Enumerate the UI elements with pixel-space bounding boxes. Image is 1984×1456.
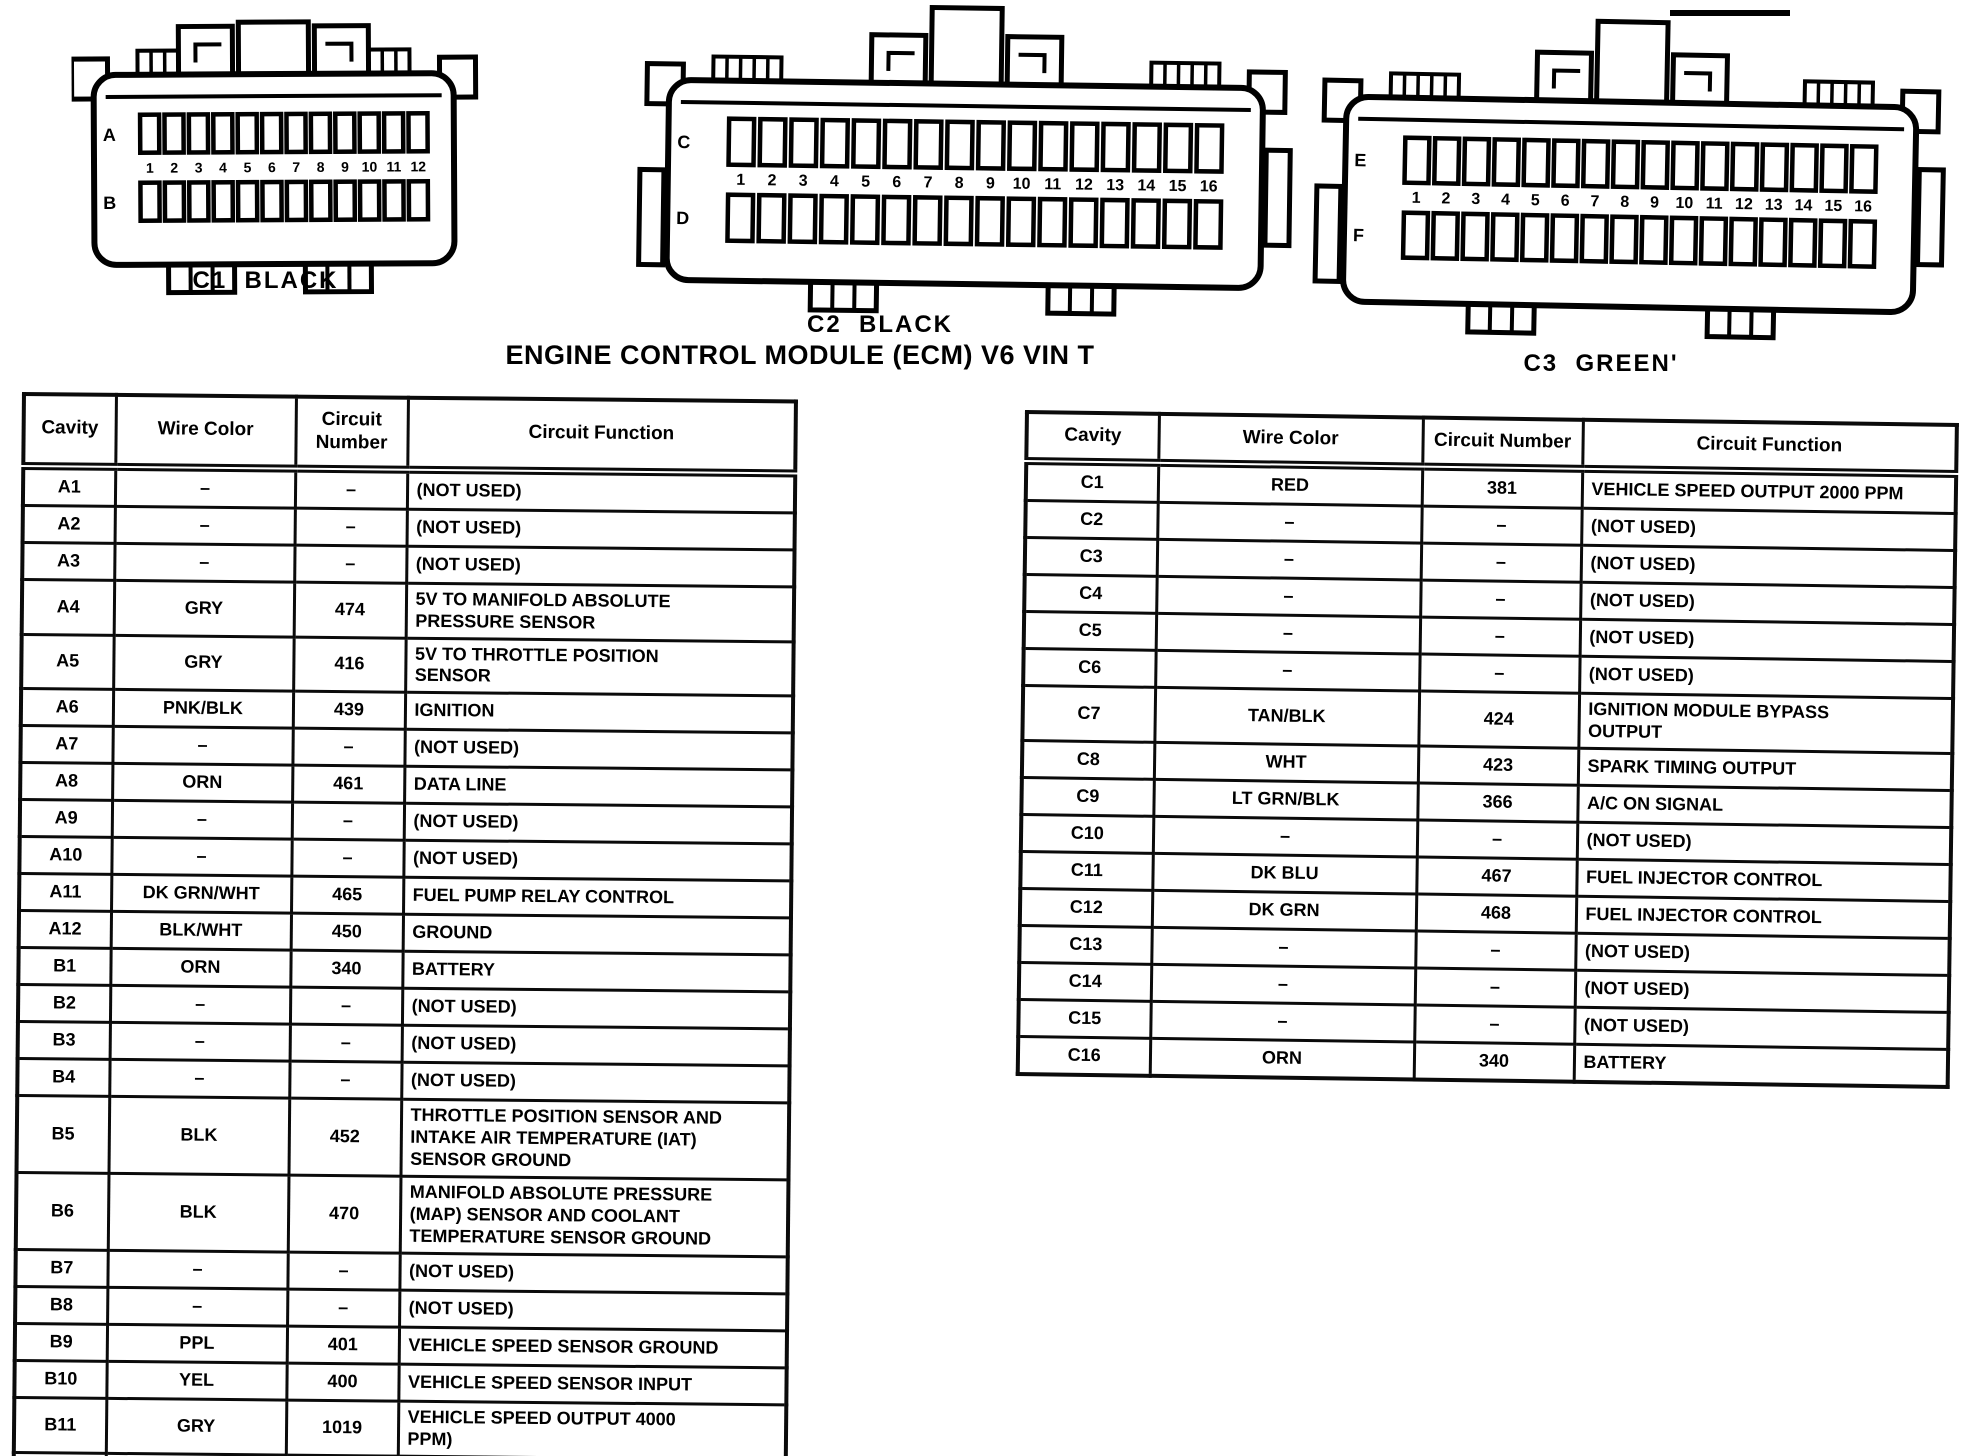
- wire-color-cell: ORN: [110, 949, 290, 988]
- wire-color-cell: LT GRN/BLK: [1153, 779, 1417, 820]
- connector-diagram-c2: CD12345678910111213141516 C2 BLACK: [634, 0, 1296, 339]
- connector-c3-drawing: EF12345678910111213141516: [1308, 8, 1954, 360]
- svg-text:8: 8: [1620, 194, 1629, 211]
- svg-text:5: 5: [243, 159, 251, 175]
- svg-text:12: 12: [1735, 196, 1753, 213]
- table-row: A5 GRY 416 5V TO THROTTLE POSITION SENSO…: [21, 634, 793, 696]
- circuit-number-cell: 439: [293, 692, 405, 730]
- circuit-function-cell: BATTERY: [402, 952, 790, 993]
- svg-text:12: 12: [410, 158, 426, 174]
- pinout-table-c2: Cavity Wire Color Circuit Number Circuit…: [1016, 410, 1959, 1089]
- wire-color-cell: –: [107, 1287, 287, 1326]
- header-circuit-number: Circuit Number: [1422, 418, 1583, 469]
- wire-color-cell: –: [110, 986, 290, 1025]
- wire-color-cell: –: [114, 543, 294, 582]
- circuit-number-cell: –: [1421, 506, 1582, 545]
- svg-text:3: 3: [799, 173, 808, 190]
- circuit-function-cell: (NOT USED): [1579, 656, 1953, 698]
- cavity-cell: B3: [18, 1022, 110, 1060]
- wire-color-cell: PPL: [107, 1324, 287, 1363]
- circuit-number-cell: 423: [1418, 746, 1579, 785]
- circuit-number-cell: 470: [288, 1175, 401, 1253]
- circuit-function-cell: (NOT USED): [1581, 508, 1955, 550]
- cavity-cell: C5: [1024, 611, 1157, 650]
- svg-text:12: 12: [1075, 177, 1093, 194]
- cavity-cell: B6: [16, 1173, 109, 1251]
- cavity-cell: C4: [1024, 574, 1157, 613]
- circuit-number-cell: –: [287, 1289, 399, 1327]
- circuit-number-cell: –: [295, 468, 407, 509]
- svg-text:8: 8: [955, 175, 964, 192]
- cavity-cell: A1: [23, 466, 115, 506]
- connector-c1-drawing: AB123456789101112: [71, 11, 505, 308]
- circuit-function-cell: DATA LINE: [404, 767, 792, 808]
- circuit-function-cell: (NOT USED): [407, 469, 795, 512]
- wire-color-cell: –: [1157, 502, 1421, 543]
- wire-color-cell: GRY: [114, 580, 295, 637]
- wire-color-cell: –: [115, 466, 295, 507]
- cavity-cell: B1: [18, 948, 110, 986]
- svg-text:B: B: [103, 193, 116, 213]
- pinout-table-c1: Cavity Wire Color Circuit Number Circuit…: [11, 392, 798, 1456]
- svg-text:D: D: [676, 208, 689, 228]
- cavity-cell: A8: [20, 763, 112, 801]
- cavity-cell: A7: [20, 726, 112, 764]
- svg-text:C: C: [677, 132, 690, 152]
- header-circuit-function: Circuit Function: [1582, 420, 1957, 474]
- wire-color-cell: BLK: [108, 1174, 289, 1253]
- svg-text:14: 14: [1137, 177, 1155, 194]
- circuit-function-cell: (NOT USED): [403, 841, 791, 882]
- wire-color-cell: PNK/BLK: [113, 690, 293, 729]
- svg-text:F: F: [1353, 225, 1364, 245]
- svg-text:6: 6: [892, 174, 901, 191]
- circuit-function-cell: GROUND: [403, 915, 791, 956]
- circuit-function-cell: (NOT USED): [1577, 822, 1951, 864]
- circuit-function-cell: MANIFOLD ABSOLUTE PRESSURE (MAP) SENSOR …: [400, 1176, 789, 1257]
- svg-text:15: 15: [1169, 178, 1187, 195]
- wire-color-cell: TAN/BLK: [1154, 687, 1419, 746]
- header-cavity: Cavity: [23, 394, 116, 466]
- svg-text:15: 15: [1824, 198, 1842, 215]
- circuit-function-cell: VEHICLE SPEED OUTPUT 4000 PPM): [398, 1401, 787, 1456]
- cavity-cell: B8: [15, 1287, 107, 1325]
- svg-text:7: 7: [1590, 193, 1599, 210]
- circuit-number-cell: –: [1421, 543, 1582, 582]
- circuit-function-cell: (NOT USED): [404, 804, 792, 845]
- circuit-function-cell: FUEL PUMP RELAY CONTROL: [403, 878, 791, 919]
- circuit-number-cell: –: [1417, 820, 1578, 859]
- circuit-number-cell: –: [295, 508, 407, 546]
- circuit-number-cell: 450: [291, 914, 403, 952]
- cavity-cell: A3: [22, 542, 114, 580]
- circuit-number-cell: 340: [290, 951, 402, 989]
- wire-color-cell: ORN: [1150, 1038, 1414, 1079]
- wire-color-cell: –: [110, 1023, 290, 1062]
- svg-text:11: 11: [1044, 176, 1061, 193]
- circuit-function-cell: (NOT USED): [402, 989, 790, 1030]
- circuit-function-cell: (NOT USED): [1580, 619, 1954, 661]
- header-wire-color: Wire Color: [1158, 414, 1423, 466]
- cavity-cell: C13: [1019, 925, 1152, 964]
- cavity-cell: B9: [15, 1324, 107, 1362]
- wire-color-cell: –: [1151, 964, 1415, 1005]
- circuit-function-cell: (NOT USED): [406, 546, 794, 587]
- circuit-function-cell: (NOT USED): [407, 509, 795, 550]
- cavity-cell: A6: [21, 689, 113, 727]
- cavity-cell: C7: [1022, 685, 1155, 742]
- svg-text:11: 11: [1706, 195, 1723, 212]
- circuit-number-cell: –: [1420, 617, 1581, 656]
- svg-text:9: 9: [986, 175, 995, 192]
- circuit-function-cell: VEHICLE SPEED OUTPUT 2000 PPM: [1582, 469, 1957, 514]
- svg-text:5: 5: [861, 174, 870, 191]
- circuit-function-cell: THROTTLE POSITION SENSOR AND INTAKE AIR …: [400, 1100, 789, 1181]
- cavity-cell: C9: [1021, 777, 1154, 816]
- circuit-number-cell: 366: [1417, 783, 1578, 822]
- wire-color-cell: –: [1156, 576, 1420, 617]
- cavity-cell: B4: [17, 1059, 109, 1097]
- svg-text:3: 3: [1471, 191, 1480, 208]
- wire-color-cell: –: [1157, 539, 1421, 580]
- circuit-function-cell: (NOT USED): [404, 730, 792, 771]
- cavity-cell: C8: [1022, 740, 1155, 779]
- circuit-function-cell: (NOT USED): [399, 1290, 787, 1331]
- table-row: B5 BLK 452 THROTTLE POSITION SENSOR AND …: [17, 1096, 790, 1180]
- svg-text:13: 13: [1106, 177, 1124, 194]
- svg-text:13: 13: [1765, 197, 1783, 214]
- svg-text:E: E: [1354, 150, 1366, 170]
- circuit-number-cell: 474: [294, 582, 407, 638]
- circuit-number-cell: 468: [1416, 894, 1577, 933]
- cavity-cell: C16: [1018, 1036, 1151, 1075]
- table-row: B11 GRY 1019 VEHICLE SPEED OUTPUT 4000 P…: [14, 1398, 786, 1456]
- circuit-function-cell: (NOT USED): [402, 1026, 790, 1067]
- wire-color-cell: RED: [1158, 463, 1423, 506]
- svg-text:5: 5: [1531, 192, 1540, 209]
- cavity-cell: C1: [1026, 461, 1159, 502]
- wire-color-cell: –: [112, 801, 292, 840]
- circuit-number-cell: –: [287, 1252, 399, 1290]
- table-row: A4 GRY 474 5V TO MANIFOLD ABSOLUTE PRESS…: [22, 579, 794, 641]
- circuit-number-cell: 452: [288, 1099, 401, 1177]
- wire-color-cell: –: [112, 727, 292, 766]
- cavity-cell: C15: [1018, 999, 1151, 1038]
- cavity-cell: B5: [17, 1096, 110, 1174]
- svg-text:10: 10: [362, 159, 378, 175]
- circuit-function-cell: FUEL INJECTOR CONTROL: [1576, 896, 1950, 938]
- circuit-number-cell: 1019: [286, 1400, 399, 1456]
- wire-color-cell: –: [1156, 613, 1420, 654]
- cavity-cell: C14: [1019, 962, 1152, 1001]
- cavity-cell: B2: [18, 985, 110, 1023]
- circuit-function-cell: FUEL INJECTOR CONTROL: [1576, 859, 1950, 901]
- svg-text:10: 10: [1675, 195, 1693, 212]
- svg-text:16: 16: [1854, 198, 1872, 215]
- svg-text:1: 1: [146, 160, 154, 176]
- cavity-cell: B10: [14, 1361, 106, 1399]
- svg-text:2: 2: [767, 172, 776, 189]
- circuit-function-cell: (NOT USED): [1575, 970, 1949, 1012]
- circuit-number-cell: –: [1420, 580, 1581, 619]
- circuit-function-cell: SPARK TIMING OUTPUT: [1578, 748, 1952, 790]
- cavity-cell: C2: [1025, 500, 1158, 539]
- table-row: B6 BLK 470 MANIFOLD ABSOLUTE PRESSURE (M…: [16, 1173, 789, 1257]
- page-title: ENGINE CONTROL MODULE (ECM) V6 VIN T: [400, 340, 1200, 371]
- circuit-function-cell: (NOT USED): [1580, 582, 1954, 624]
- circuit-number-cell: 381: [1422, 466, 1583, 508]
- wire-color-cell: –: [107, 1250, 287, 1289]
- circuit-function-cell: (NOT USED): [1574, 1007, 1948, 1049]
- circuit-number-cell: –: [1415, 931, 1576, 970]
- svg-text:4: 4: [1501, 192, 1510, 209]
- svg-text:2: 2: [170, 160, 178, 176]
- circuit-function-cell: IGNITION MODULE BYPASS OUTPUT: [1578, 693, 1953, 753]
- cavity-cell: C12: [1020, 888, 1153, 927]
- wire-color-cell: –: [1151, 927, 1415, 968]
- svg-text:6: 6: [268, 159, 276, 175]
- table-header-row: Cavity Wire Color Circuit Number Circuit…: [23, 394, 796, 473]
- circuit-number-cell: –: [1415, 968, 1576, 1007]
- header-circuit-number: Circuit Number: [295, 397, 408, 470]
- svg-text:8: 8: [317, 159, 325, 175]
- svg-text:1: 1: [1412, 190, 1421, 207]
- circuit-number-cell: –: [290, 988, 402, 1026]
- circuit-number-cell: –: [1419, 654, 1580, 693]
- circuit-number-cell: 467: [1416, 857, 1577, 896]
- wire-color-cell: BLK: [109, 1097, 290, 1176]
- circuit-number-cell: 424: [1418, 691, 1579, 748]
- svg-text:A: A: [103, 125, 116, 145]
- circuit-function-cell: BATTERY: [1574, 1044, 1948, 1087]
- cavity-cell: B12: [13, 1453, 105, 1456]
- cavity-cell: C11: [1020, 851, 1153, 890]
- svg-text:10: 10: [1013, 176, 1031, 193]
- cavity-cell: A9: [20, 800, 112, 838]
- wire-color-cell: –: [115, 506, 295, 545]
- wire-color-cell: GRY: [113, 635, 294, 692]
- circuit-function-cell: 5V TO THROTTLE POSITION SENSOR: [405, 638, 794, 697]
- wire-color-cell: GRY: [106, 1398, 287, 1455]
- circuit-number-cell: 340: [1414, 1042, 1575, 1082]
- header-circuit-function: Circuit Function: [407, 398, 796, 473]
- cavity-cell: C10: [1021, 814, 1154, 853]
- wire-color-cell: –: [111, 838, 291, 877]
- svg-text:4: 4: [830, 173, 839, 190]
- connector-diagram-c3: EF12345678910111213141516 C3 GREEN': [1311, 14, 1951, 378]
- circuit-number-cell: –: [289, 1062, 401, 1100]
- wire-color-cell: YEL: [106, 1361, 286, 1400]
- wire-color-cell: ORN: [112, 764, 292, 803]
- circuit-function-cell: VEHICLE SPEED SENSOR INPUT: [398, 1364, 786, 1405]
- circuit-number-cell: –: [292, 803, 404, 841]
- header-cavity: Cavity: [1026, 412, 1159, 463]
- circuit-function-cell: A/C ON SIGNAL: [1577, 785, 1951, 827]
- svg-text:9: 9: [1650, 194, 1659, 211]
- circuit-number-cell: –: [294, 545, 406, 583]
- circuit-number-cell: 401: [287, 1326, 399, 1364]
- circuit-number-cell: 461: [292, 766, 404, 804]
- circuit-function-cell: VEHICLE SPEED SENSOR GROUND: [399, 1327, 787, 1368]
- wire-color-cell: –: [1155, 650, 1419, 691]
- cavity-cell: B7: [15, 1250, 107, 1288]
- svg-text:4: 4: [219, 159, 227, 175]
- circuit-function-cell: (NOT USED): [1575, 933, 1949, 975]
- wire-color-cell: DK GRN: [1152, 890, 1416, 931]
- wire-color-cell: –: [1153, 816, 1417, 857]
- svg-text:7: 7: [923, 174, 932, 191]
- cavity-cell: A12: [19, 911, 111, 949]
- wire-color-cell: –: [109, 1060, 289, 1099]
- cavity-cell: A10: [19, 837, 111, 875]
- circuit-number-cell: 400: [286, 1363, 398, 1401]
- wire-color-cell: BLK/WHT: [111, 912, 291, 951]
- wire-color-cell: DK BLU: [1152, 853, 1416, 894]
- svg-text:11: 11: [386, 158, 401, 174]
- svg-text:1: 1: [736, 172, 745, 189]
- circuit-number-cell: 465: [291, 877, 403, 915]
- cavity-cell: A4: [22, 579, 115, 635]
- connector-diagram-c1: AB123456789101112 C1 BLACK: [72, 12, 504, 295]
- wire-color-cell: WHT: [1154, 742, 1418, 783]
- ecm-pinout-page: AB123456789101112 C1 BLACK CD12345678910…: [0, 0, 1984, 1456]
- svg-text:3: 3: [195, 159, 203, 175]
- circuit-function-cell: (NOT USED): [401, 1063, 789, 1104]
- wire-color-cell: DK GRN/WHT: [111, 875, 291, 914]
- cavity-cell: A5: [21, 634, 114, 690]
- circuit-function-cell: 5V TO MANIFOLD ABSOLUTE PRESSURE SENSOR: [406, 583, 795, 642]
- circuit-function-cell: IGNITION: [405, 693, 793, 734]
- connector-c2-drawing: CD12345678910111213141516: [632, 0, 1299, 340]
- wire-color-cell: –: [1150, 1001, 1414, 1042]
- svg-text:7: 7: [292, 159, 300, 175]
- svg-text:16: 16: [1200, 178, 1218, 195]
- circuit-number-cell: –: [1414, 1005, 1575, 1044]
- circuit-number-cell: –: [291, 840, 403, 878]
- svg-text:2: 2: [1441, 190, 1450, 207]
- cavity-cell: C6: [1023, 648, 1156, 687]
- cavity-cell: C3: [1025, 537, 1158, 576]
- header-wire-color: Wire Color: [115, 395, 296, 468]
- cavity-cell: A11: [19, 874, 111, 912]
- circuit-function-cell: (NOT USED): [1581, 545, 1955, 587]
- circuit-number-cell: 416: [293, 637, 406, 693]
- circuit-function-cell: (NOT USED): [399, 1253, 787, 1294]
- svg-text:6: 6: [1561, 193, 1570, 210]
- svg-text:9: 9: [341, 159, 349, 175]
- cavity-cell: A2: [23, 505, 115, 543]
- cavity-cell: B11: [14, 1398, 107, 1454]
- circuit-number-cell: –: [290, 1025, 402, 1063]
- svg-text:14: 14: [1794, 197, 1812, 214]
- circuit-number-cell: –: [292, 729, 404, 767]
